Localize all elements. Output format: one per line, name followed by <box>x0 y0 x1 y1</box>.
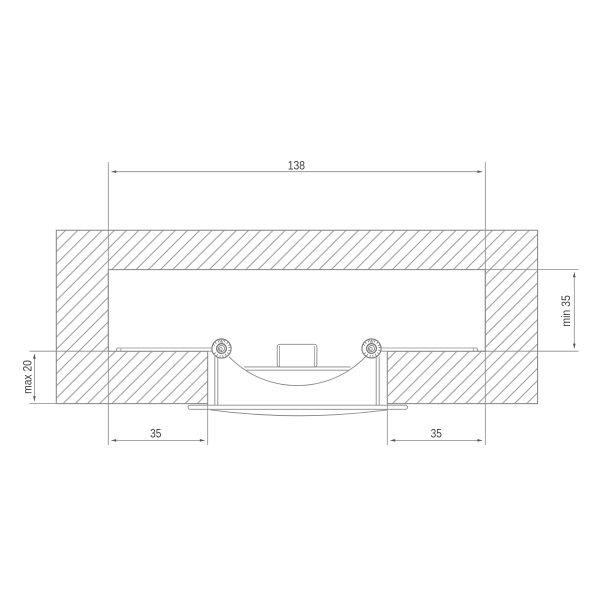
svg-text:35: 35 <box>431 426 442 440</box>
svg-text:min 35: min 35 <box>559 295 573 327</box>
svg-text:138: 138 <box>288 158 305 172</box>
svg-text:max 20: max 20 <box>20 360 34 394</box>
svg-text:35: 35 <box>150 426 161 440</box>
